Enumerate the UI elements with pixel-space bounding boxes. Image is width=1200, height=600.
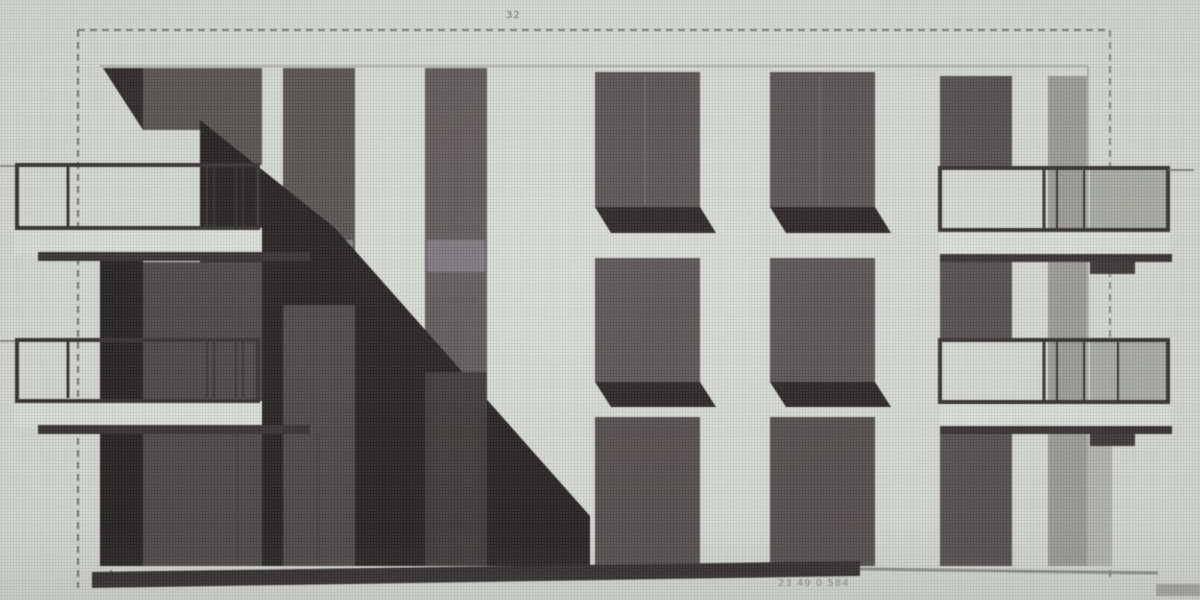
window-4-middle: [595, 258, 700, 382]
balcony-a-slab: [15, 226, 262, 254]
balcony-d-slab-edge: [940, 426, 1172, 434]
ground-line-thin-right: [860, 569, 1158, 573]
balcony-c-slab: [940, 230, 1170, 256]
grey-strip-7-lower-wide: [1087, 430, 1112, 566]
corner-shadow-triangle: [103, 68, 143, 130]
shadowed-window-band-3: [425, 372, 487, 566]
window-4-upper-sill-shadow: [595, 207, 716, 233]
window-5-upper: [770, 72, 875, 207]
window-5-lower: [770, 417, 875, 566]
window-5-middle: [770, 258, 875, 382]
window-strip-6-upper: [940, 76, 1012, 168]
window-4-upper: [595, 72, 700, 207]
grey-strip-7: [1048, 76, 1087, 566]
window-5-middle-sill-shadow: [770, 382, 891, 407]
window-strip-6-middle: [940, 262, 1012, 340]
balcony-b-slab: [15, 399, 262, 427]
elevation-sheet: 32 23 49 0 584: [0, 0, 1200, 600]
bottom-dimension-label: 23 49 0 584: [778, 578, 849, 589]
window-4-middle-sill-shadow: [595, 382, 716, 407]
corner-smudge: [1156, 584, 1200, 596]
window-strip-6-lower: [940, 430, 1012, 566]
spandrel-panel-strip-3: [427, 240, 485, 272]
elevation-drawing-svg: [0, 0, 1200, 600]
balcony-d-under-shadow: [1090, 434, 1135, 446]
balcony-d-side-wall: [1090, 340, 1168, 402]
balcony-d-slab: [940, 402, 1170, 428]
window-5-upper-sill-shadow: [770, 207, 891, 233]
balcony-c-side-wall: [1090, 168, 1168, 230]
balcony-b-slab-edge: [38, 425, 310, 434]
balcony-c-under-shadow: [1090, 262, 1135, 274]
top-dimension-label: 32: [506, 10, 521, 21]
balcony-c-slab-edge: [940, 254, 1172, 262]
balcony-a-slab-edge: [38, 252, 310, 261]
window-4-lower: [595, 417, 700, 566]
